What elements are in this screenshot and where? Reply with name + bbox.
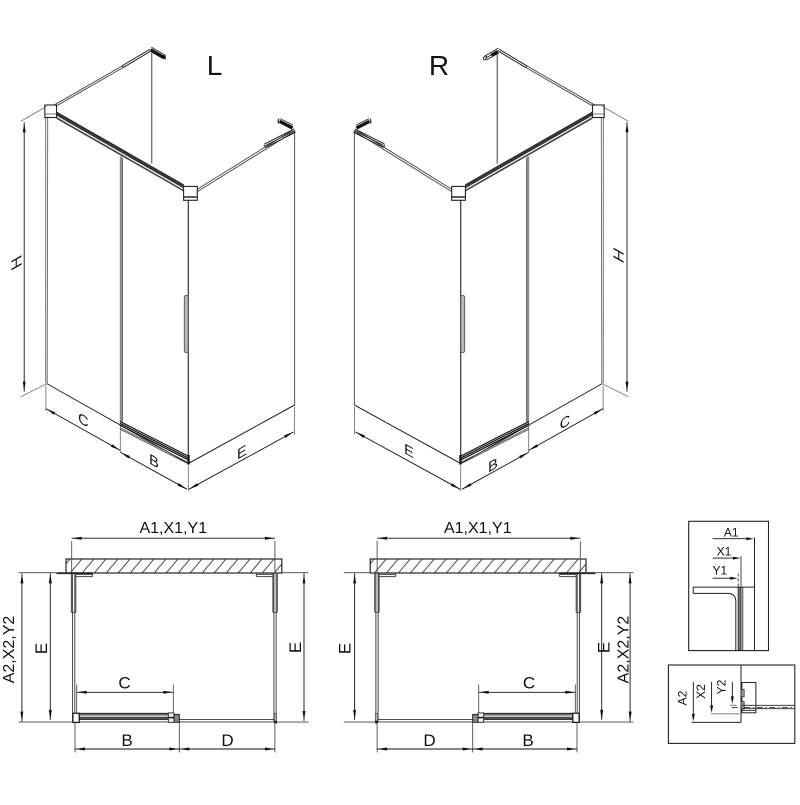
svg-text:D: D	[423, 731, 435, 750]
svg-text:A2,X2,Y2: A2,X2,Y2	[616, 616, 633, 684]
svg-text:X2: X2	[694, 684, 708, 699]
svg-text:X1: X1	[717, 545, 732, 559]
svg-text:E: E	[32, 643, 51, 654]
svg-text:L: L	[207, 50, 223, 81]
svg-text:C: C	[118, 674, 130, 693]
svg-text:Y1: Y1	[713, 564, 728, 578]
svg-text:A2,X2,Y2: A2,X2,Y2	[1, 616, 18, 684]
svg-text:C: C	[523, 674, 535, 693]
svg-text:E: E	[286, 642, 305, 653]
svg-text:B: B	[121, 731, 132, 750]
svg-text:E: E	[595, 642, 614, 653]
svg-text:B: B	[522, 731, 533, 750]
svg-text:A2: A2	[675, 690, 689, 705]
svg-text:E: E	[336, 643, 355, 654]
svg-text:D: D	[221, 731, 233, 750]
svg-text:A1: A1	[724, 525, 739, 539]
svg-text:A1,X1,Y1: A1,X1,Y1	[139, 520, 207, 537]
svg-text:A1,X1,Y1: A1,X1,Y1	[444, 520, 512, 537]
svg-text:R: R	[429, 50, 449, 81]
svg-text:Y2: Y2	[715, 679, 729, 694]
